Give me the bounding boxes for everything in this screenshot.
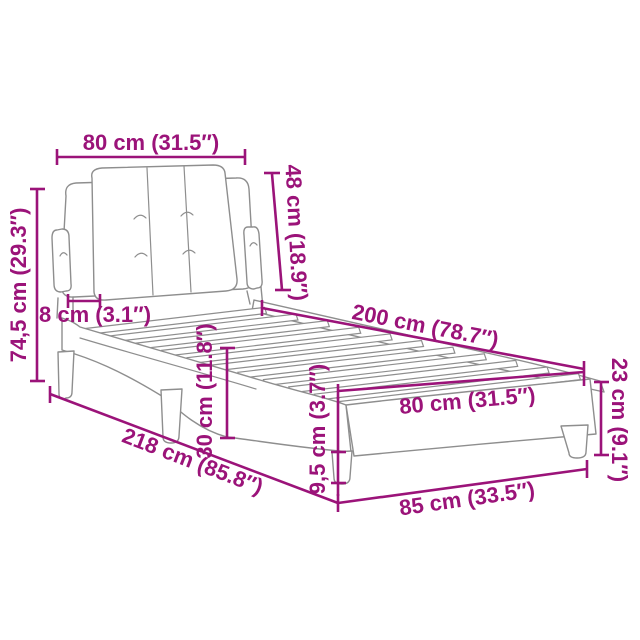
dim-label: 74,5 cm (29.3″) <box>6 208 31 363</box>
headboard-cushion <box>92 165 237 300</box>
dim-overall-height: 74,5 cm (29.3″) <box>6 189 45 381</box>
dim-headboard-width: 80 cm (31.5″) <box>57 130 245 165</box>
dim-label: 9,5 cm (3.7″) <box>305 364 330 494</box>
dim-label: 30 cm (11.8″) <box>192 323 217 458</box>
bed-leg <box>332 451 352 484</box>
dim-line <box>272 174 282 290</box>
dim-foot-height: 23 cm (9.1″) <box>594 358 632 482</box>
dim-headboard-height: 48 cm (18.9″) <box>264 164 313 302</box>
headboard-wing-right <box>244 227 262 289</box>
bed-leg <box>161 389 182 443</box>
dim-label: 85 cm (33.5″) <box>398 477 537 521</box>
dim-label: 48 cm (18.9″) <box>280 164 312 302</box>
dim-label: 8 cm (3.1″) <box>39 302 151 327</box>
dim-headboard-depth: 8 cm (3.1″) <box>39 294 151 327</box>
headboard <box>52 165 263 322</box>
headboard-wing-left <box>52 229 71 292</box>
dim-label: 23 cm (9.1″) <box>607 358 632 482</box>
dim-label: 80 cm (31.5″) <box>83 130 220 155</box>
product-dimension-image: 80 cm (31.5″) 48 cm (18.9″) 74,5 cm (29.… <box>0 0 640 640</box>
dim-foot-width: 85 cm (33.5″) <box>338 460 587 520</box>
bed-leg <box>58 351 74 399</box>
bed-frame-diagram: 80 cm (31.5″) 48 cm (18.9″) 74,5 cm (29.… <box>0 0 640 640</box>
bed-leg <box>561 425 588 458</box>
